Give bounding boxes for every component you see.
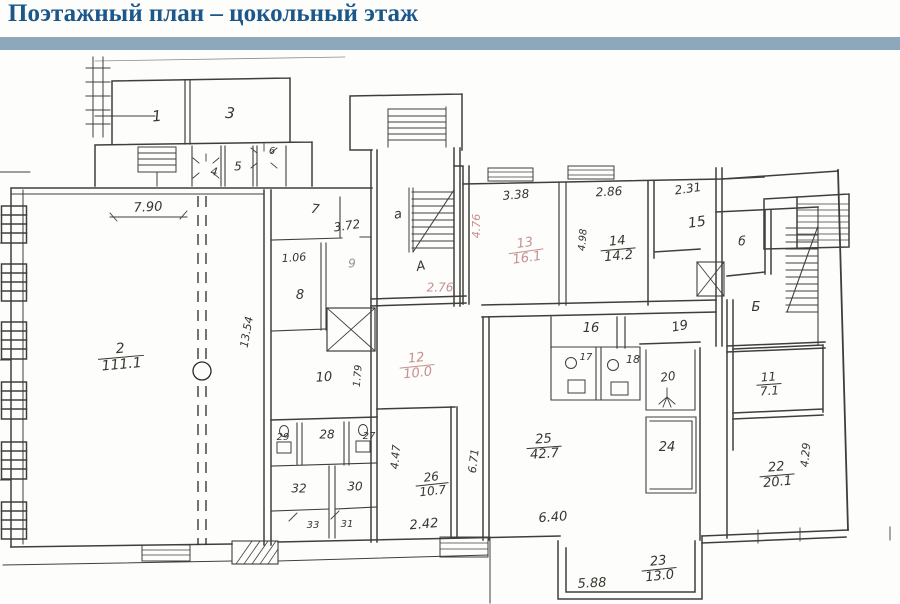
column-symbol (193, 362, 211, 380)
floor-plan: 1345678910151617181920242728293031323321… (0, 0, 900, 604)
page: Поэтажный план – цокольный этаж (0, 0, 900, 604)
floor-plan-drawing (0, 0, 900, 604)
